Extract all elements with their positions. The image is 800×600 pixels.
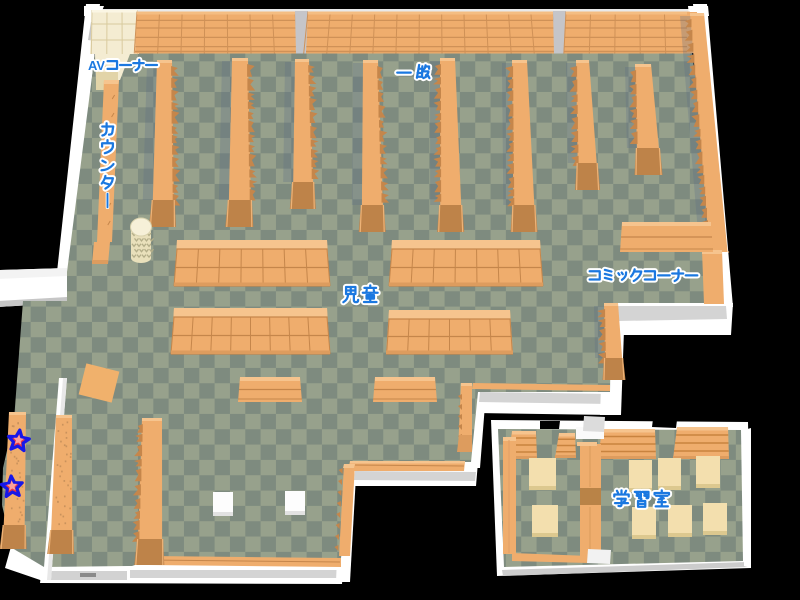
svg-text:AV: AV [88,58,105,73]
